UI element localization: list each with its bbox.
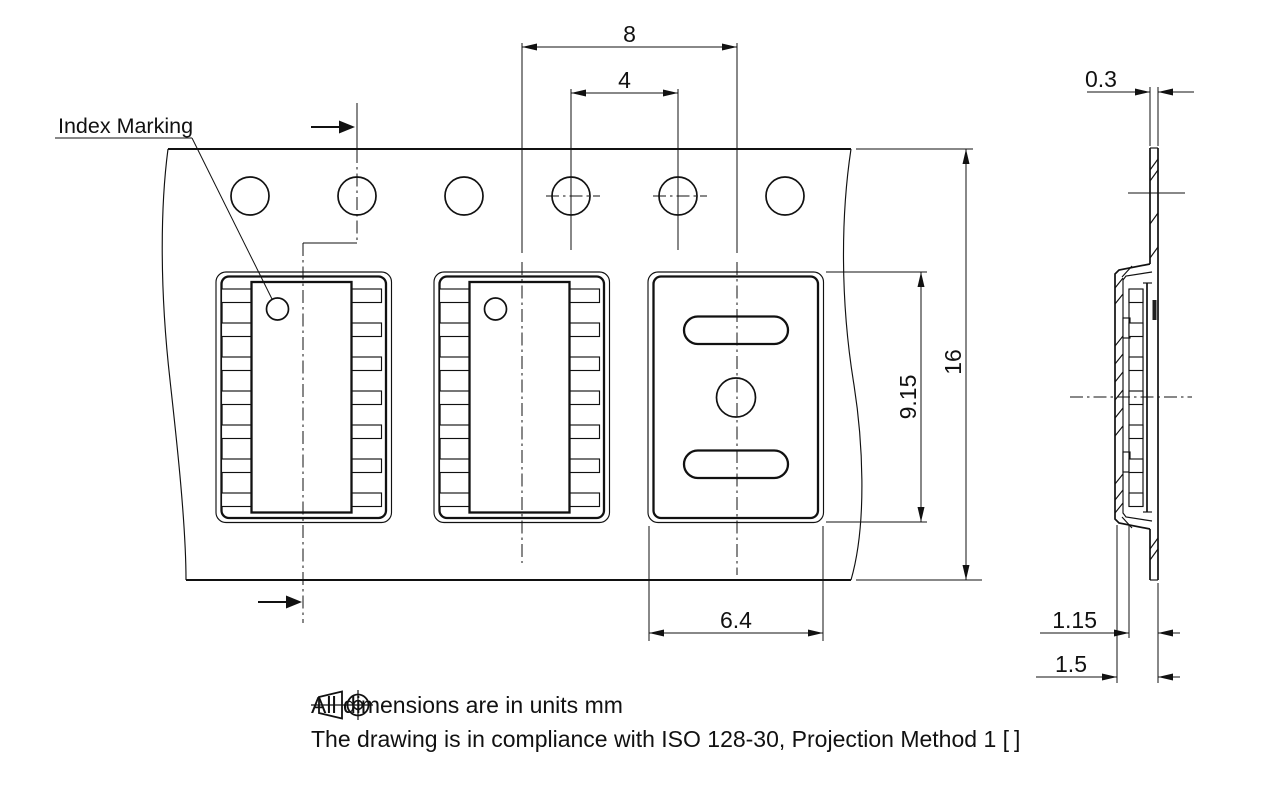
dim-pocket-length: 9.15	[826, 272, 927, 522]
dim-tape-width: 16	[856, 149, 982, 580]
tape-torn-edge-left	[162, 149, 186, 580]
sprocket-hole-1	[231, 177, 269, 215]
note-units: All dimensions are in units mm	[311, 688, 1020, 722]
drawing-notes: All dimensions are in units mm The drawi…	[311, 688, 1020, 756]
sprocket-hole-6	[766, 177, 804, 215]
front-view: Index Marking 8 4 9.15	[55, 21, 982, 641]
note-standard-text: The drawing is in compliance with ISO 12…	[311, 722, 1009, 756]
first-angle-projection-icon	[311, 688, 375, 722]
index-marking-label: Index Marking	[58, 114, 193, 138]
dim-hole-pitch: 4	[571, 67, 678, 97]
drawing-svg: Index Marking 8 4 9.15	[0, 0, 1280, 788]
sprocket-hole-3	[445, 177, 483, 215]
dim-pocket-pitch-value: 8	[623, 21, 636, 47]
note-standard: The drawing is in compliance with ISO 12…	[311, 722, 1020, 756]
dim-pocket-pitch: 8	[522, 21, 737, 51]
pocket-center-hole	[717, 378, 756, 417]
dim-pocket-width-value: 6.4	[720, 607, 752, 633]
section-arrow-bottom	[258, 596, 302, 609]
pocket-slot-bottom	[684, 451, 788, 479]
dim-tape-thickness-value: 0.3	[1085, 66, 1117, 92]
dim-tape-width-value: 16	[940, 349, 966, 375]
carrier-tape-drawing: Index Marking 8 4 9.15	[0, 0, 1280, 788]
tape-torn-edge-right	[843, 149, 861, 580]
sprocket-holes	[231, 177, 804, 215]
dim-pocket-width: 6.4	[649, 526, 823, 641]
dim-tape-thickness: 0.3	[1085, 66, 1194, 146]
pocket-3-empty	[648, 272, 824, 523]
dim-depth-total-value: 1.5	[1055, 651, 1087, 677]
dim-depth-inner-value: 1.15	[1052, 607, 1097, 633]
dim-pocket-length-value: 9.15	[895, 375, 921, 420]
dim-hole-pitch-value: 4	[618, 67, 631, 93]
note-standard-bracket: ]	[1014, 722, 1020, 756]
index-mark-section	[1153, 300, 1157, 320]
side-view: 0.3 1.15 1.5	[1036, 66, 1194, 683]
pocket-slot-top	[684, 317, 788, 345]
section-arrow-top	[311, 121, 355, 134]
